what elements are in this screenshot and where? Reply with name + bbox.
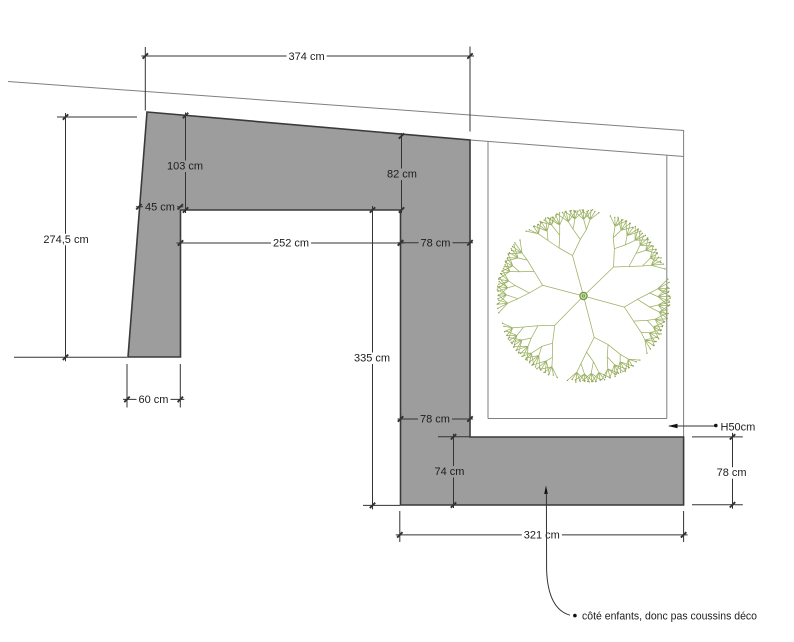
svg-text:78 cm: 78 cm xyxy=(420,414,450,426)
svg-text:335 cm: 335 cm xyxy=(354,353,390,365)
svg-text:côté enfants, donc pas coussin: côté enfants, donc pas coussins déco xyxy=(582,611,757,623)
svg-text:274,5 cm: 274,5 cm xyxy=(43,234,88,246)
svg-text:78 cm: 78 cm xyxy=(717,467,747,479)
svg-text:103 cm: 103 cm xyxy=(167,161,203,173)
svg-text:82 cm: 82 cm xyxy=(387,169,417,181)
svg-text:374 cm: 374 cm xyxy=(289,51,325,63)
svg-text:H50cm: H50cm xyxy=(721,422,756,434)
svg-text:321 cm: 321 cm xyxy=(524,530,560,542)
svg-text:252 cm: 252 cm xyxy=(273,238,309,250)
svg-text:78 cm: 78 cm xyxy=(421,237,451,249)
svg-text:45 cm: 45 cm xyxy=(145,201,175,213)
svg-text:74 cm: 74 cm xyxy=(435,466,465,478)
svg-text:60 cm: 60 cm xyxy=(139,394,169,406)
